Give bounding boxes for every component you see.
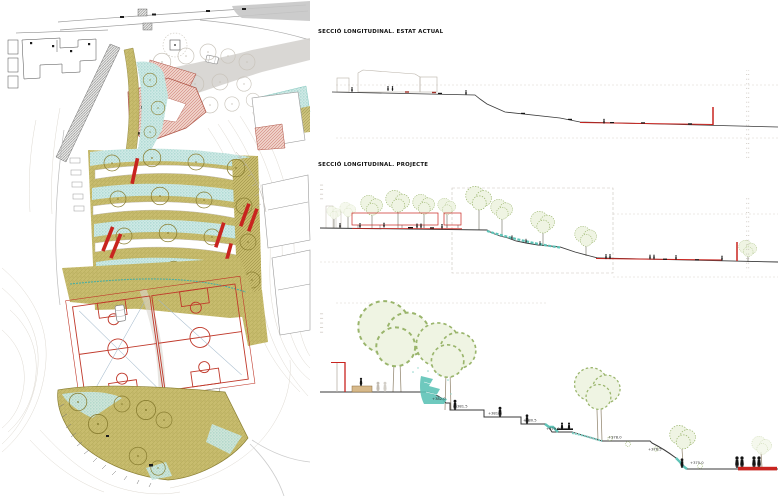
elevation-ruler-2 — [746, 196, 749, 272]
small-structure — [138, 9, 147, 16]
site-plan — [2, 1, 310, 496]
elevation-label: +378.0 — [608, 436, 622, 440]
elevation-ruler-1 — [746, 70, 749, 158]
elevation-ruler-3-left — [320, 310, 323, 336]
wood-bench — [352, 386, 372, 392]
left-structures — [331, 362, 387, 392]
reference-lines-1 — [336, 85, 778, 138]
section-actual: SECCIÓ LONGITUDINAL. ESTAT ACTUAL — [318, 28, 778, 158]
red-canopy-structures — [352, 213, 461, 228]
elevation-label: +381.5 — [454, 405, 468, 409]
car-court — [115, 305, 126, 322]
waterfall-cascades — [412, 367, 687, 469]
drawing-sheet: SECCIÓ LONGITUDINAL. ESTAT ACTUAL SECCIÓ… — [0, 0, 780, 496]
small-structure — [143, 23, 152, 30]
section-detail: +382.0 +381.5 +381.0 +380.5 +379.0 +378.… — [320, 301, 778, 470]
section-actual-title: SECCIÓ LONGITUDINAL. ESTAT ACTUAL — [318, 28, 444, 35]
elevation-label: +375.0 — [690, 461, 704, 465]
people-figures-3 — [453, 400, 760, 468]
section-project: SECCIÓ LONGITUDINAL. PROJECTE — [318, 161, 778, 277]
elevation-label: +381.0 — [488, 412, 502, 416]
water-steps-project — [487, 231, 560, 248]
red-track-bar — [738, 467, 777, 471]
elevation-labels: +382.0 +381.5 +381.0 +380.5 +379.0 +378.… — [432, 397, 704, 465]
elevation-label: +376.5 — [648, 448, 662, 452]
trees-project — [327, 186, 757, 262]
elevation-ruler-2-left — [320, 182, 323, 202]
elevation-label: +382.0 — [432, 397, 446, 401]
north-roads — [58, 1, 310, 40]
section-project-title: SECCIÓ LONGITUDINAL. PROJECTE — [318, 161, 428, 168]
elevation-label: +379.0 — [546, 427, 560, 431]
south-roads — [250, 440, 310, 496]
elevation-label: +380.5 — [523, 419, 537, 423]
terrain-line-actual — [332, 92, 778, 127]
red-surface-line-1 — [580, 123, 713, 125]
drawing-canvas: SECCIÓ LONGITUDINAL. ESTAT ACTUAL SECCIÓ… — [0, 0, 780, 496]
